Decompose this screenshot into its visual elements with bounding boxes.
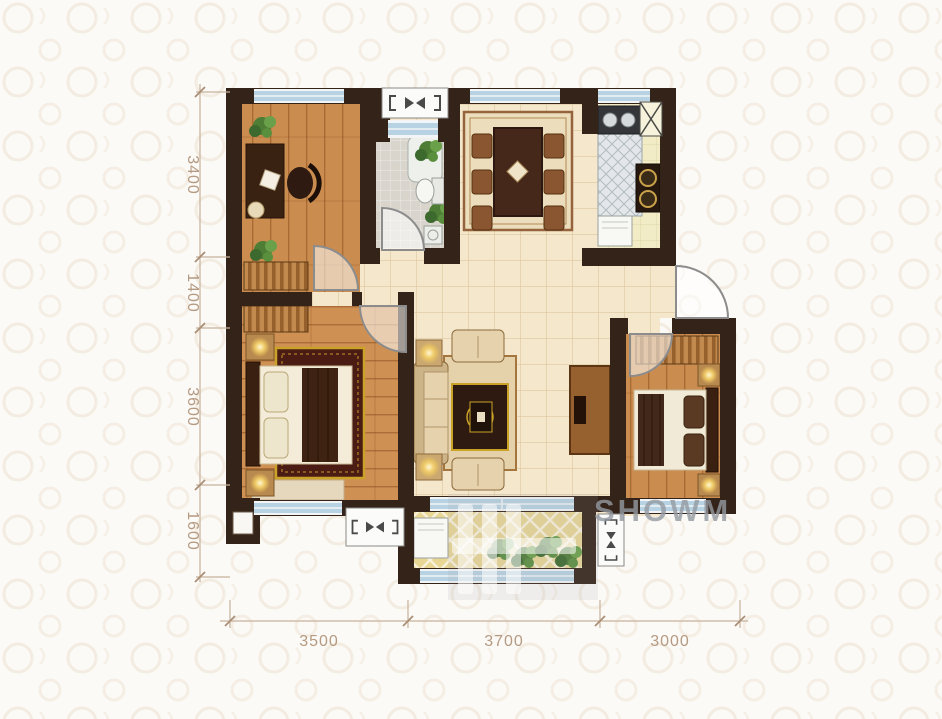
stool (248, 202, 264, 218)
lamp-icon (250, 337, 270, 357)
bathroom-sink (424, 226, 442, 244)
floor-plan-page: SHOWM 3400 1400 3600 1600 3500 3700 3000 (0, 0, 942, 719)
sofa-main (414, 362, 448, 464)
corner-column (233, 512, 253, 534)
dim-left-3400: 3400 (184, 155, 201, 195)
lamp-icon (250, 473, 270, 493)
window-master-south (254, 501, 342, 515)
dim-left-3600: 3600 (184, 387, 201, 427)
office-chair (287, 167, 313, 199)
floor-plan-drawing: SHOWM 3400 1400 3600 1600 3500 3700 3000 (0, 0, 942, 719)
ac-unit-box-bottom-left (346, 508, 404, 546)
room-dining (464, 112, 572, 230)
entry-corridor-floor (582, 266, 676, 318)
toilet-bowl (416, 179, 434, 203)
ac-unit-box-top (382, 88, 448, 118)
dim-bottom-3000: 3000 (650, 633, 690, 650)
lamp-icon (700, 476, 718, 494)
dim-left-1400: 1400 (184, 273, 201, 313)
lamp-icon (700, 366, 718, 384)
dim-left-1600: 1600 (184, 511, 201, 551)
bedroom2-bed (634, 388, 718, 472)
dim-bottom-3500: 3500 (299, 633, 339, 650)
burner (640, 170, 656, 186)
sink-basin-right (621, 113, 635, 127)
window-study-top (254, 89, 344, 103)
kitchen-counter (598, 132, 642, 216)
kitchen-appliance (598, 216, 632, 246)
master-bed (246, 362, 352, 466)
window-kitchen-top (598, 89, 650, 103)
burner (640, 191, 656, 207)
window-bathroom (388, 120, 438, 138)
master-wardrobe (244, 306, 308, 332)
pillow (264, 372, 288, 412)
dim-bottom-3700: 3700 (484, 633, 524, 650)
blanket (302, 368, 338, 462)
window-dining-top (470, 89, 560, 103)
lamp-icon (418, 456, 440, 478)
tv-screen (574, 396, 586, 424)
flue-icon (640, 102, 662, 136)
pillow (684, 396, 704, 428)
sink-basin-left (603, 113, 617, 127)
pillow (684, 434, 704, 466)
lamp-icon (418, 342, 440, 364)
watermark-text: SHOWM (594, 493, 731, 528)
pillow (264, 418, 288, 458)
study-wardrobe (244, 262, 308, 290)
